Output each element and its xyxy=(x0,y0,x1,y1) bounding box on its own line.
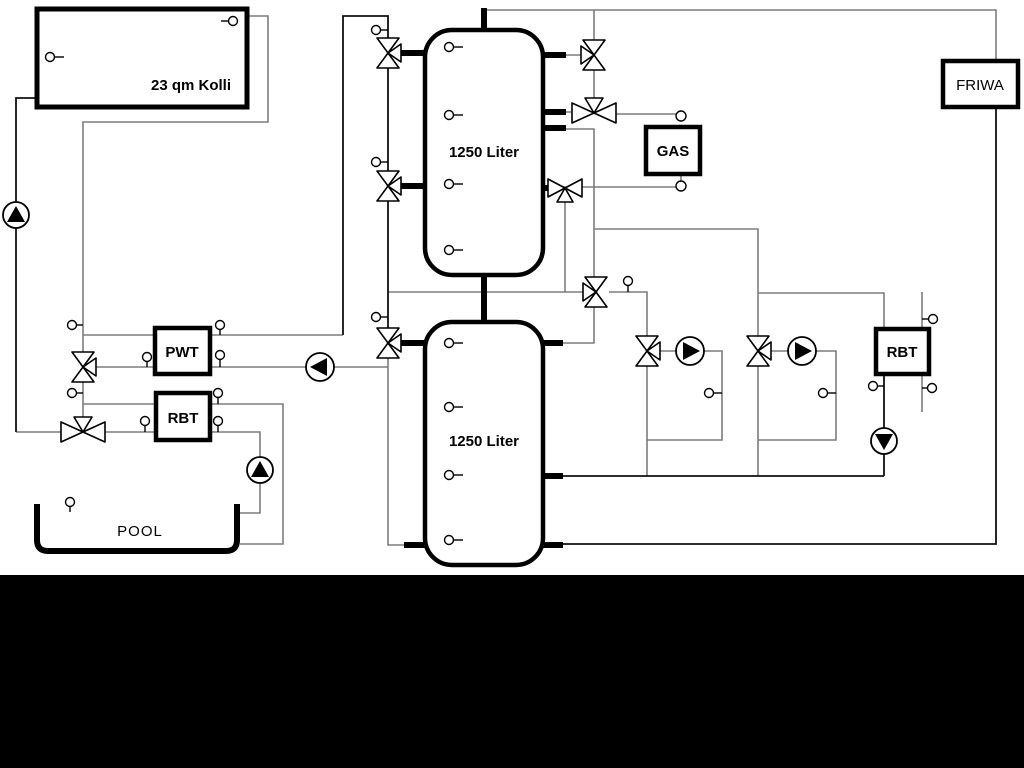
mixing-sensor-icon xyxy=(624,277,633,293)
pipe-tank-mid-down xyxy=(543,129,594,343)
friwa-label: FRIWA xyxy=(956,77,1004,94)
rbt-right-label: RBT xyxy=(887,344,918,361)
pwt-loop-pump-icon xyxy=(306,353,334,381)
rbt-right-sensor-2-icon xyxy=(869,382,885,391)
circuit-1-valve-icon xyxy=(636,336,660,366)
pipe-to-rbtright xyxy=(758,293,884,329)
rbt-left-sensor-3-icon xyxy=(214,417,223,433)
tank-lower-left-valve-icon xyxy=(377,328,401,358)
circuit-2-valve-icon xyxy=(747,336,771,366)
gas-supply-valve-icon xyxy=(572,98,616,123)
pipe-mix-circuit1 xyxy=(609,292,647,476)
chain-sensor-3-icon xyxy=(372,313,389,322)
pipe-solar-riser xyxy=(16,98,37,432)
pool-pump-icon xyxy=(247,457,273,483)
pool-solar-valve-icon xyxy=(61,417,105,442)
heating-circuit-2-pump-icon xyxy=(788,337,816,365)
collector-label: 23 qm Kolli xyxy=(151,77,231,94)
tank-top-left-valve-icon xyxy=(377,38,401,68)
pwt-sensor-2-icon xyxy=(143,353,152,368)
rbt-right-sensor-1-icon xyxy=(922,315,938,324)
chain-sensor-2-icon xyxy=(372,158,389,167)
rbt-right-sensor-3-icon xyxy=(922,384,937,393)
tank-top-right-valve-icon xyxy=(581,40,605,70)
tank-lower-label: 1250 Liter xyxy=(449,433,519,450)
gas-label: GAS xyxy=(657,143,690,160)
solar-pwt-valve-icon xyxy=(72,352,96,382)
circuit-2-sensor-icon xyxy=(819,389,837,398)
gas-top-sensor-icon xyxy=(676,111,686,121)
pool-sensor-icon xyxy=(66,498,75,513)
mixing-valve-icon xyxy=(583,277,607,307)
pool-label: POOL xyxy=(117,523,163,540)
pipe-tankside-down xyxy=(388,357,427,545)
tank-upper-label: 1250 Liter xyxy=(449,144,519,161)
pipe-branch-229 xyxy=(594,229,758,293)
schematic-page: 23 qm Kolli 1250 Liter 1250 Liter GAS FR… xyxy=(0,0,1024,768)
solar-pump-icon xyxy=(3,202,29,228)
pipe-friwa-return xyxy=(563,107,996,544)
solar-line-sensor-1-icon xyxy=(68,321,84,330)
tank-mid-left-valve-icon xyxy=(377,171,401,201)
rbt-left-label: RBT xyxy=(168,410,199,427)
hydraulic-schematic: 23 qm Kolli 1250 Liter 1250 Liter GAS FR… xyxy=(0,0,1024,768)
solar-line-sensor-2-icon xyxy=(68,389,84,398)
rbt-left-sensor-2-icon xyxy=(141,417,150,433)
rbt-right-pump-icon xyxy=(871,428,897,454)
gas-bottom-sensor-icon xyxy=(676,181,686,191)
rbt-left-sensor-1-icon xyxy=(214,389,223,405)
pwt-label: PWT xyxy=(165,344,198,361)
pwt-sensor-1-icon xyxy=(216,321,225,336)
bottom-black-bar xyxy=(0,575,1024,768)
pwt-sensor-3-icon xyxy=(216,351,225,368)
gas-return-valve-icon xyxy=(548,179,582,202)
chain-sensor-1-icon xyxy=(372,26,389,35)
heating-circuit-1-pump-icon xyxy=(676,337,704,365)
circuit-1-sensor-icon xyxy=(705,389,723,398)
